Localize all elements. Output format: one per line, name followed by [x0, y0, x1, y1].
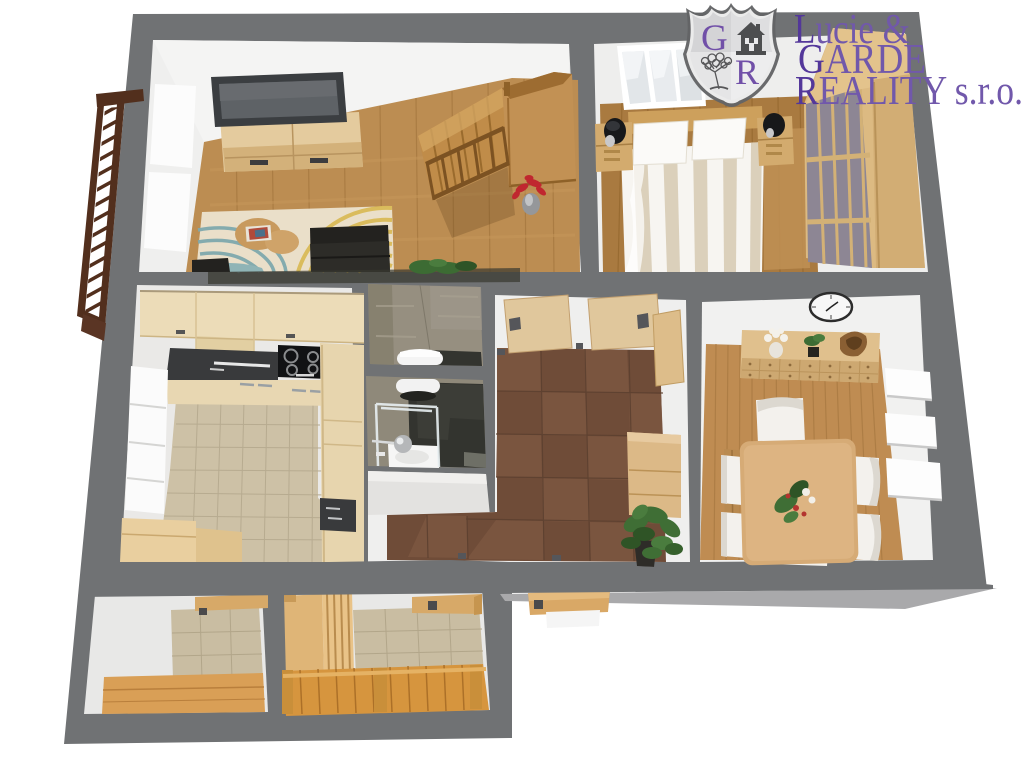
- svg-text:R: R: [735, 52, 759, 92]
- svg-text:REALITY s.r.o.: REALITY s.r.o.: [795, 67, 1023, 113]
- svg-text:G: G: [701, 18, 728, 59]
